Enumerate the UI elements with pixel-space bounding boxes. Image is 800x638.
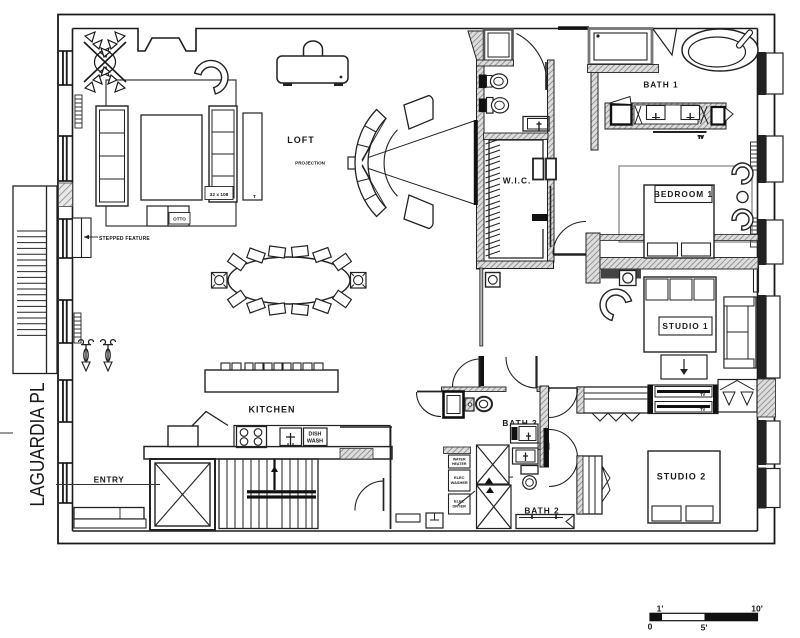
svg-text:HEATER: HEATER: [452, 462, 467, 466]
svg-text:LAGUARDIA PL: LAGUARDIA PL: [26, 383, 49, 507]
svg-text:T: T: [253, 194, 256, 200]
svg-text:PROJECTION: PROJECTION: [295, 161, 326, 166]
svg-text:ENTRY: ENTRY: [94, 475, 125, 485]
svg-text:KITCHEN: KITCHEN: [249, 405, 296, 415]
svg-text:BEDROOM 1: BEDROOM 1: [654, 189, 713, 199]
svg-text:10': 10': [751, 604, 762, 614]
svg-text:32 x 108: 32 x 108: [210, 192, 229, 198]
svg-text:DISH: DISH: [309, 432, 322, 438]
svg-text:5': 5': [701, 623, 708, 633]
svg-text:WASHER: WASHER: [451, 480, 468, 485]
svg-text:STUDIO 2: STUDIO 2: [657, 472, 707, 482]
svg-text:WASH: WASH: [307, 439, 323, 445]
svg-text:WATER: WATER: [453, 458, 466, 462]
svg-text:LOFT: LOFT: [287, 135, 315, 145]
svg-text:STUDIO 1: STUDIO 1: [662, 321, 708, 331]
svg-text:STEPPED FEATURE: STEPPED FEATURE: [99, 236, 150, 242]
svg-text:W.I.C.: W.I.C.: [503, 176, 532, 186]
svg-text:1': 1': [657, 604, 664, 614]
svg-text:BATH 1: BATH 1: [643, 80, 678, 90]
svg-text:TV: TV: [700, 407, 706, 412]
svg-text:OTTO: OTTO: [173, 217, 186, 222]
svg-text:TV: TV: [700, 392, 706, 397]
svg-text:0: 0: [648, 622, 653, 632]
svg-text:TV: TV: [698, 135, 704, 140]
